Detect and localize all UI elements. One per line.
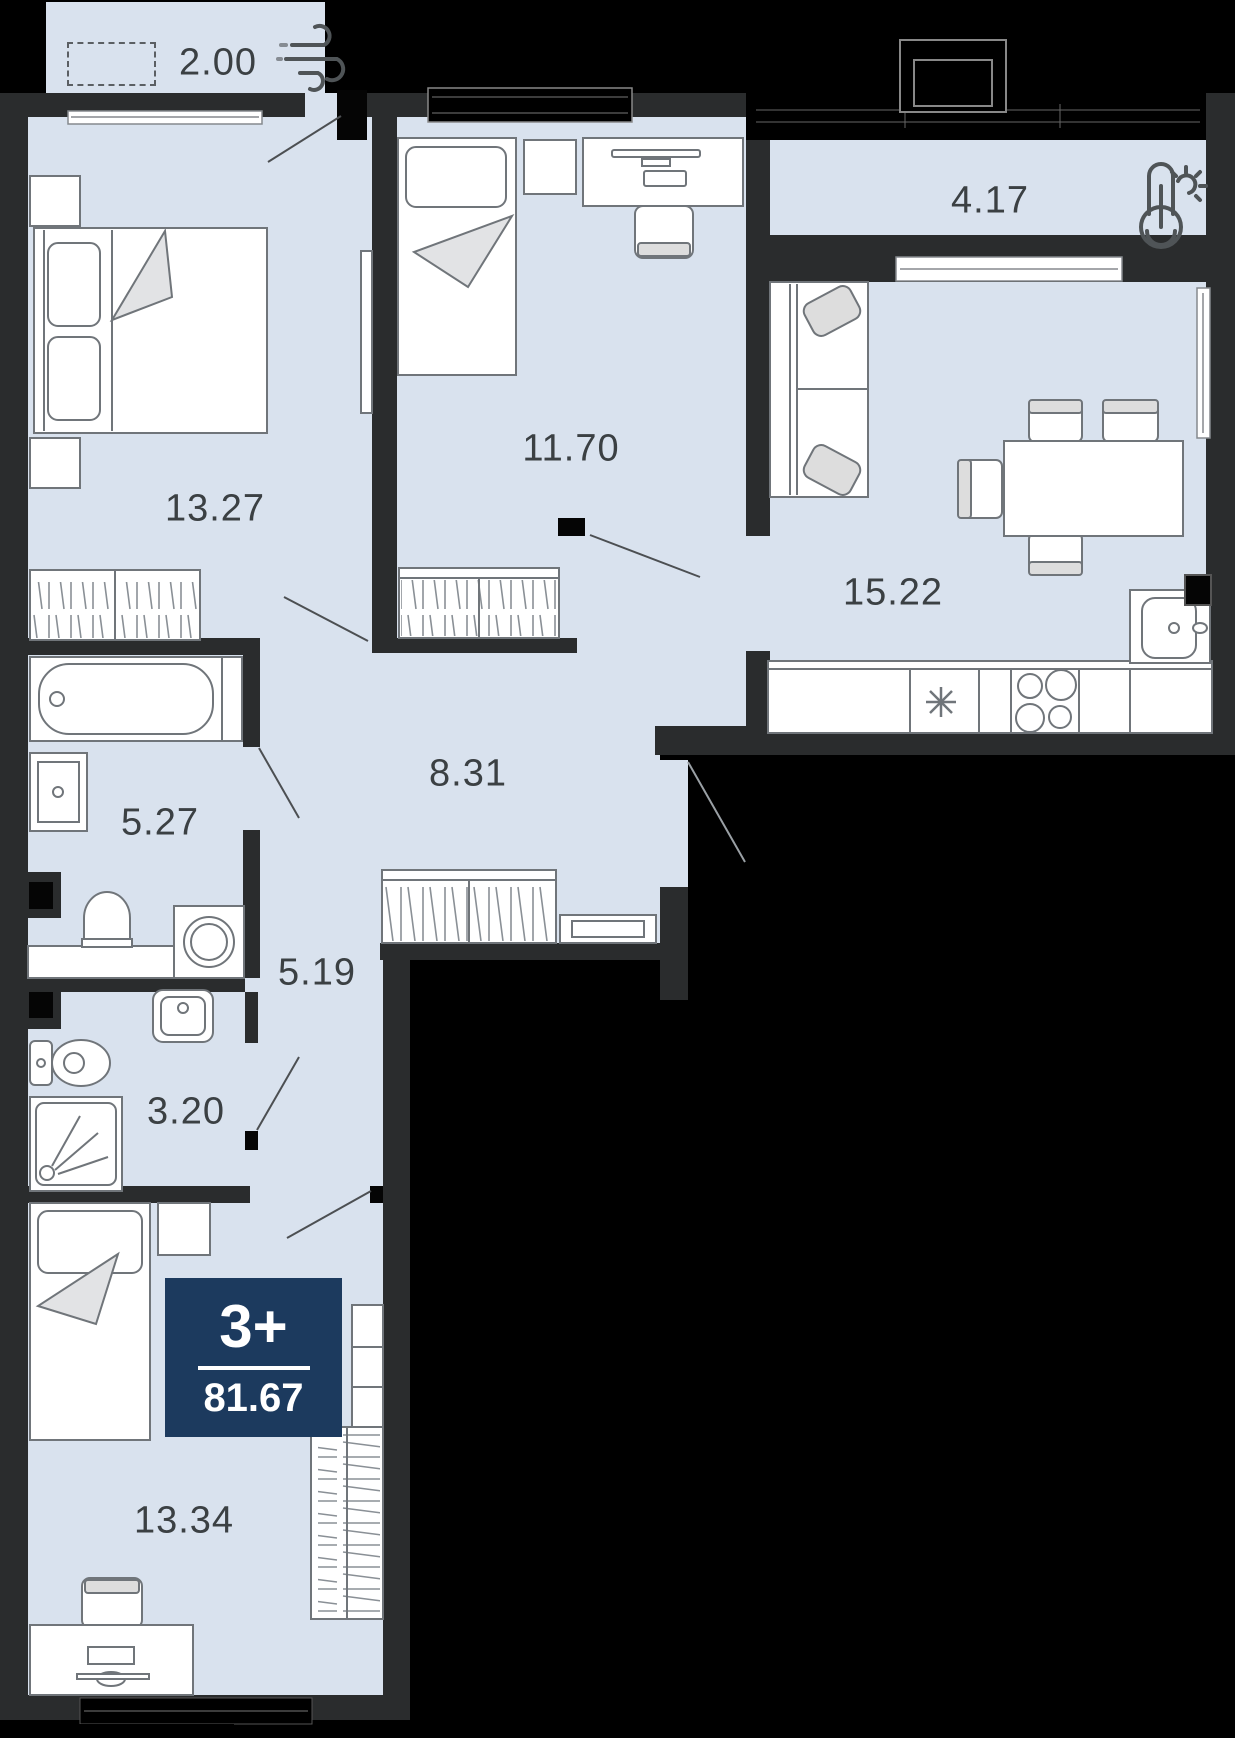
floor-wc-door-gap: [245, 1043, 258, 1131]
room-area-kitchen: 15.22: [843, 572, 943, 615]
wall: [367, 93, 770, 117]
floor-bedroom-third: [28, 1203, 383, 1695]
floor-entrance-gap: [660, 760, 688, 887]
apartment-badge: 3+ 81.67: [165, 1278, 342, 1437]
wall: [1206, 93, 1235, 755]
floor-balcony-door-gap: [305, 93, 337, 117]
wall: [746, 651, 770, 726]
room-area-bathroom: 5.27: [121, 802, 199, 845]
vent-shaft-icon: [29, 882, 53, 909]
wall: [372, 93, 397, 653]
room-area-bedroom1: 13.27: [165, 488, 265, 531]
wall: [655, 726, 1235, 755]
room-area-hallway: 8.31: [429, 753, 507, 796]
balcony-dashed-zone: [67, 42, 156, 86]
floor-bath-door-gap: [243, 747, 260, 830]
wall: [380, 943, 680, 960]
wall: [28, 1186, 250, 1203]
door-stub: [245, 1131, 258, 1150]
room-area-bedroom3: 13.34: [134, 1500, 234, 1543]
apartment-type: 3+: [219, 1297, 287, 1357]
door-stub: [337, 90, 367, 140]
floor-hallway-east: [660, 653, 746, 726]
wall: [746, 235, 1206, 282]
wall: [243, 830, 260, 978]
wall: [0, 93, 28, 1720]
wall: [0, 638, 260, 655]
door-stub: [370, 1186, 383, 1203]
floor-kitchen: [770, 282, 1206, 726]
wall: [245, 992, 258, 1043]
room-area-loggia: 4.17: [951, 180, 1029, 223]
door-stub: [558, 518, 585, 536]
wall: [0, 93, 305, 117]
wall: [372, 638, 577, 653]
badge-divider: [198, 1366, 310, 1370]
floor-bed3-door-gap: [250, 1186, 370, 1203]
floor-kitchen-passage: [746, 536, 770, 651]
wall: [243, 655, 260, 747]
room-area-corridor: 5.19: [278, 952, 356, 995]
wall: [383, 960, 410, 1720]
room-area-balcony: 2.00: [179, 42, 257, 85]
wall: [28, 1695, 410, 1720]
floor-plan: 2.00 13.27 11.70 4.17 15.22 8.31 5.27 5.…: [0, 0, 1235, 1738]
room-area-bedroom2: 11.70: [522, 428, 619, 471]
apartment-total-area: 81.67: [203, 1378, 303, 1418]
wall: [746, 93, 770, 536]
vent-shaft-icon: [29, 992, 53, 1018]
room-area-wc: 3.20: [147, 1091, 225, 1134]
